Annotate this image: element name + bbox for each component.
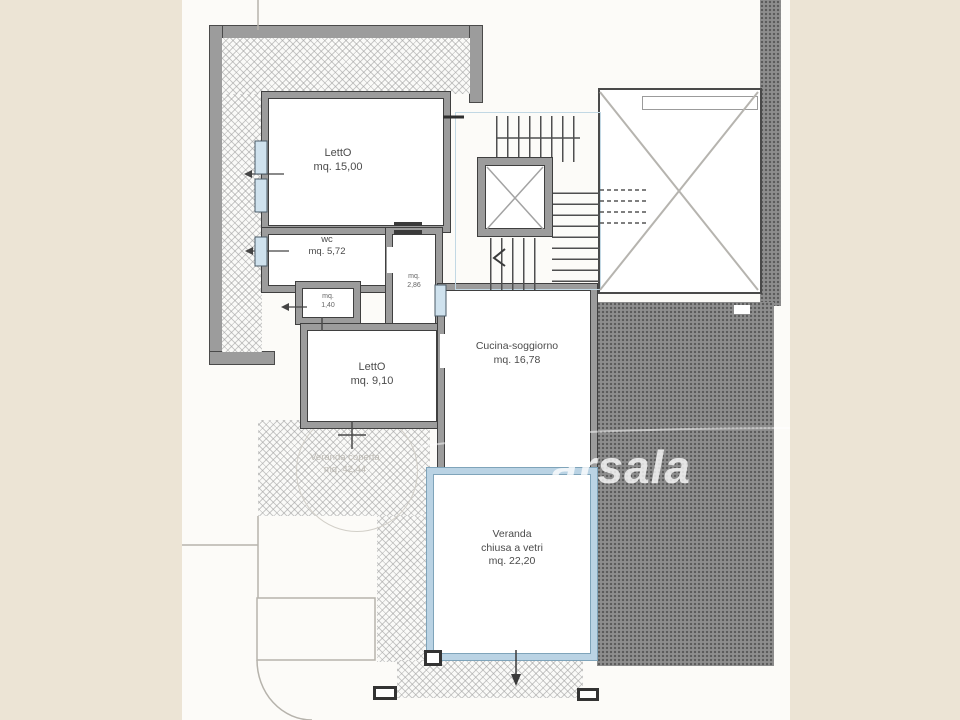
terrace-wall-left xyxy=(210,26,222,364)
terrace-wall-right xyxy=(470,26,482,102)
label-kitchen-living: Cucina-soggiorno mq. 16,78 xyxy=(447,340,587,367)
room-area: mq. 42,44 xyxy=(280,464,410,476)
adjacent-unit-beam xyxy=(642,96,758,110)
room-area: mq. 22,20 xyxy=(452,555,572,569)
stairs-right xyxy=(552,184,600,282)
label-wc: wc mq. 5,72 xyxy=(287,234,367,259)
terrace-hatch-left xyxy=(222,94,262,352)
elevator-shaft xyxy=(478,158,552,236)
terrace-wall-top xyxy=(210,26,482,38)
room-area: mq. 16,78 xyxy=(447,354,587,368)
label-veranda-glazed: Veranda chiusa a vetri mq. 22,20 xyxy=(452,528,572,569)
room-area: mq. 9,10 xyxy=(312,374,432,388)
room-name: LettO xyxy=(312,360,432,374)
label-veranda-coperta: Veranda coperta mq. 42,44 xyxy=(280,452,410,477)
post-bottom-right xyxy=(577,688,599,701)
label-bedroom-1: LettO mq. 15,00 xyxy=(278,146,398,175)
room-name: Veranda coperta xyxy=(280,452,410,464)
label-hallway: mq. 2,86 xyxy=(390,272,438,290)
post-bottom-left xyxy=(373,686,397,700)
courtyard-dots-strip xyxy=(760,0,781,306)
room-area: 1,40 xyxy=(299,301,357,310)
terrace-hatch-top xyxy=(222,38,470,94)
terrace-wall-bottom xyxy=(210,352,274,364)
watermark-text: arsala xyxy=(552,440,691,494)
room-name-2: chiusa a vetri xyxy=(452,542,572,556)
room-area: mq. 15,00 xyxy=(278,160,398,174)
room-name: mq. xyxy=(390,272,438,281)
label-closet: mq. 1,40 xyxy=(299,292,357,310)
room-area: 2,86 xyxy=(390,281,438,290)
floor-plan-page: LettO mq. 15,00 wc mq. 5,72 mq. 1,40 mq.… xyxy=(0,0,960,720)
room-name: Veranda xyxy=(452,528,572,542)
stairs-bottom xyxy=(490,238,544,290)
stairs-top xyxy=(496,116,580,162)
post-veranda-corner xyxy=(424,650,442,666)
room-name: wc xyxy=(287,234,367,246)
adjacent-unit xyxy=(598,88,762,294)
room-name: mq. xyxy=(299,292,357,301)
room-name: Cucina-soggiorno xyxy=(447,340,587,354)
room-area: mq. 5,72 xyxy=(287,246,367,258)
label-bedroom-2: LettO mq. 9,10 xyxy=(312,360,432,389)
room-name: LettO xyxy=(278,146,398,160)
walkway-hatch-left xyxy=(377,516,430,662)
courtyard-notch xyxy=(734,305,750,314)
